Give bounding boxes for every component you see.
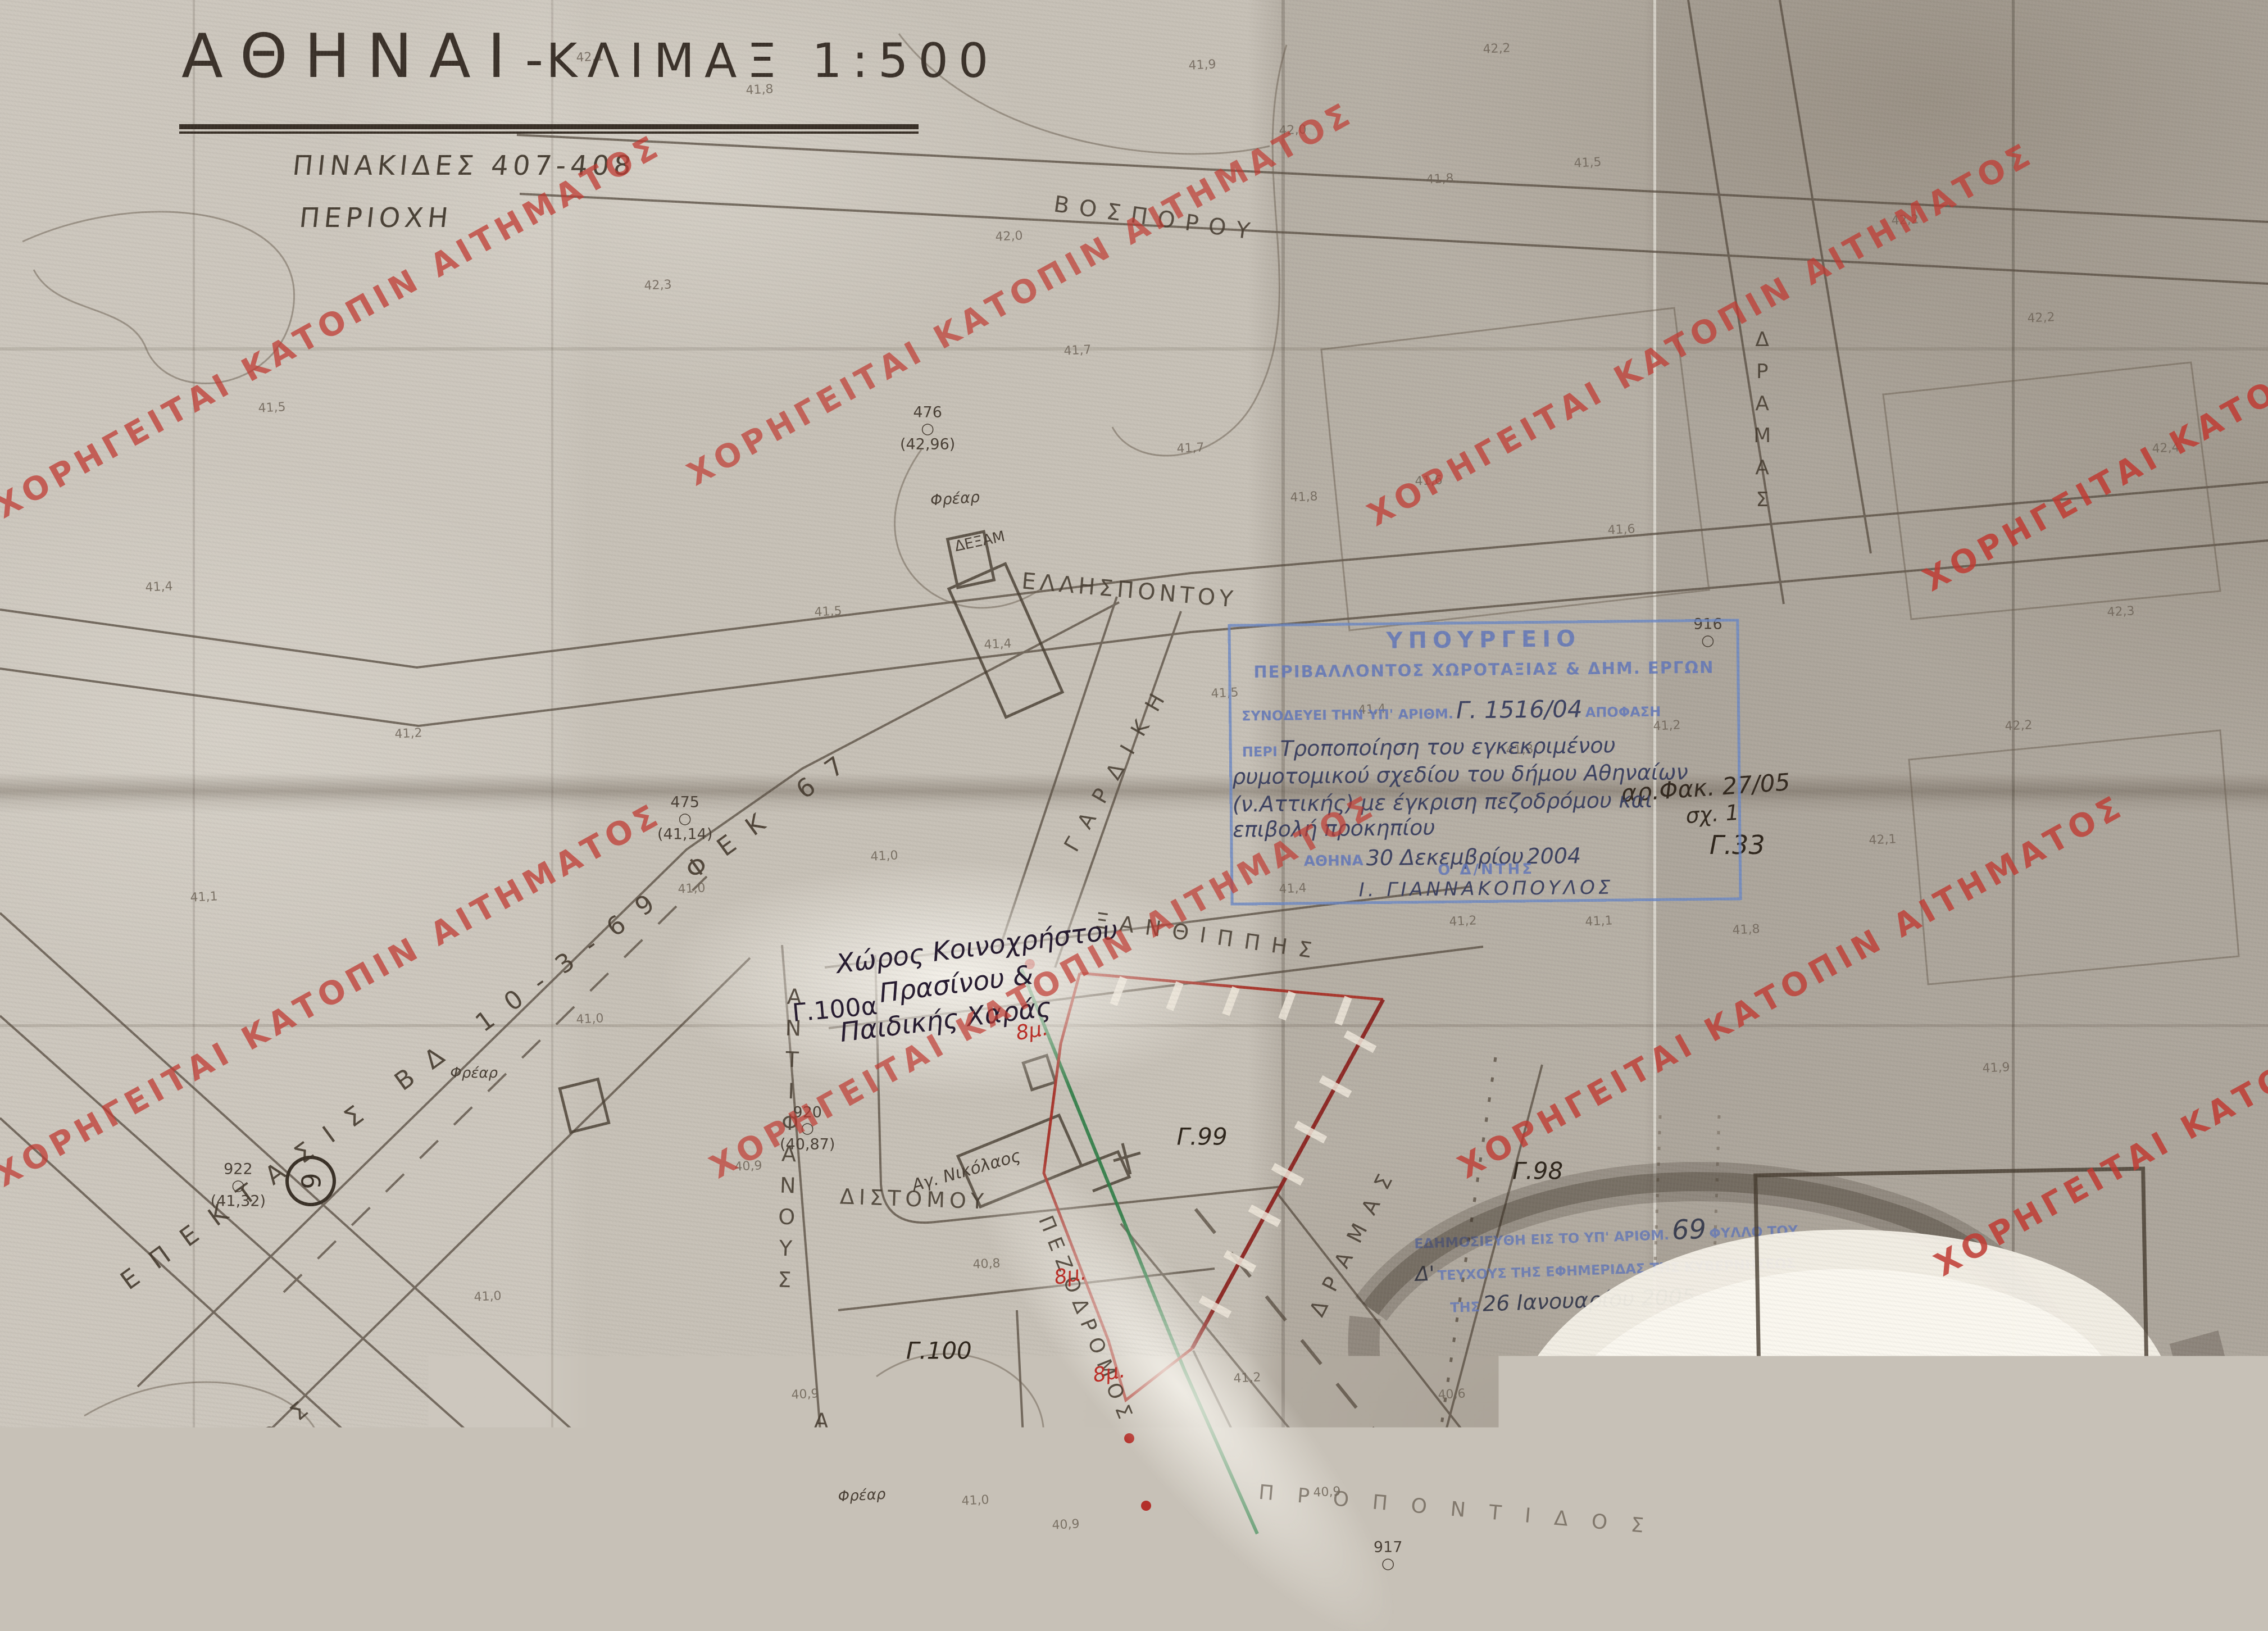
whiteout-blob-layer: [0, 0, 2268, 1631]
scanned-cadastral-map: ΒΟΣΠΟΡΟΥΕΛΛΗΣΠΟΝΤΟΥΓΑΡΔΙΚΗΞΑΝΘΙΠΠΗΣΑΝΤΙΦ…: [0, 0, 2268, 1631]
